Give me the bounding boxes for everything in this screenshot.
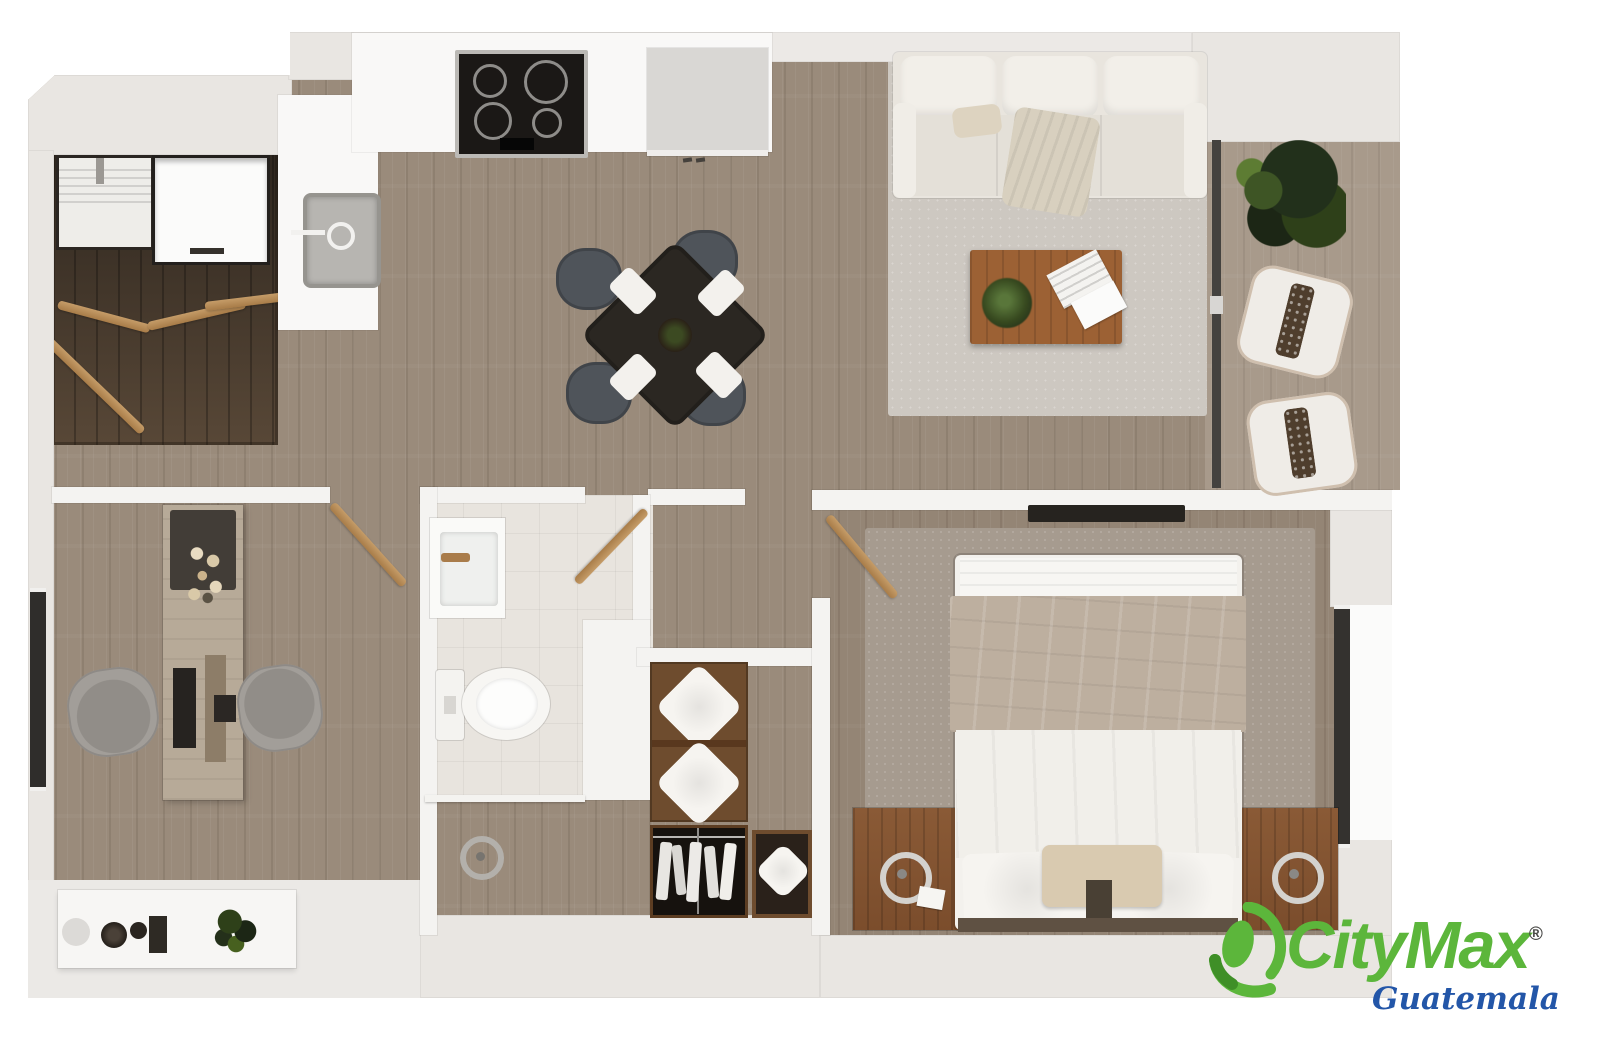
wall-left xyxy=(28,150,54,998)
wall-office-top xyxy=(52,487,330,503)
wall-bath-chase xyxy=(583,620,650,800)
floor-plan-image: CityMax® Guatemala xyxy=(0,0,1600,1038)
sliding-glass-door xyxy=(1212,140,1221,488)
desk-device xyxy=(214,695,236,722)
cooktop-burner xyxy=(524,60,568,104)
wall-kitchen-chunk xyxy=(288,32,354,80)
nightstand-notepad xyxy=(916,886,945,910)
sideboard-bowl xyxy=(130,922,147,939)
logo-region-text: Guatemala xyxy=(1372,984,1560,1015)
cooktop-controls xyxy=(500,138,534,150)
sofa-armrest xyxy=(1184,103,1207,198)
vanity-basin xyxy=(440,532,498,606)
bed-blanket xyxy=(950,596,1246,732)
table-centerpiece xyxy=(658,318,692,352)
sofa-armrest xyxy=(893,103,916,198)
sliding-door-handle xyxy=(1210,296,1223,314)
cooktop-burner xyxy=(473,64,507,98)
shower-glass xyxy=(425,795,585,802)
toilet-button xyxy=(444,696,456,714)
apartment-plan xyxy=(0,0,1600,1038)
sideboard-tray xyxy=(62,918,90,946)
citymax-swoosh-icon xyxy=(1208,902,1288,1007)
coffee-table-plant xyxy=(982,278,1032,328)
desk-flowers xyxy=(178,535,232,609)
logo-registered-mark: ® xyxy=(1529,924,1543,945)
washer-handle xyxy=(96,158,104,184)
wall-top-right-block xyxy=(1192,32,1400,142)
sink-faucet-arm xyxy=(291,230,325,235)
sideboard-plant xyxy=(205,896,267,960)
wall-right-sliver xyxy=(1350,605,1392,840)
sideboard-box xyxy=(149,916,167,953)
wall-tv xyxy=(1028,505,1185,522)
balcony-plant xyxy=(1228,140,1346,252)
wall-bottom-center xyxy=(420,915,820,998)
kitchen-island xyxy=(647,48,768,156)
sofa-throw-blanket xyxy=(1001,106,1102,218)
cooktop-burner xyxy=(532,108,562,138)
logo-brand-text: CityMax® xyxy=(1286,912,1543,979)
wall-bedroom-left xyxy=(812,598,830,935)
sofa-back-cushion xyxy=(1002,56,1098,118)
lamp-center xyxy=(1289,869,1299,879)
dining-chair xyxy=(556,248,622,310)
refrigerator-handle xyxy=(190,248,224,254)
toilet-seat xyxy=(476,678,538,730)
sink-faucet xyxy=(327,222,355,250)
office-window xyxy=(30,588,46,791)
desk-monitor xyxy=(173,668,196,748)
wall-top-left-mass xyxy=(28,75,292,155)
vanity-faucet xyxy=(441,553,470,562)
washer xyxy=(56,155,154,250)
closet-rod xyxy=(653,836,745,838)
shower-drain-dot xyxy=(476,852,485,861)
sofa-lumbar-pillow xyxy=(951,103,1002,139)
logo-brand-word: CityMax xyxy=(1286,908,1529,983)
wall-bath-top-right xyxy=(648,489,745,505)
lamp-center xyxy=(897,869,907,879)
wall-bath-top-left xyxy=(420,487,585,503)
bed-duvet xyxy=(956,730,1241,858)
bed-headboard xyxy=(958,918,1238,932)
citymax-logo: CityMax® Guatemala xyxy=(1208,898,1600,1028)
cooktop-burner xyxy=(474,102,512,140)
bed-sheet-fold xyxy=(960,558,1237,598)
nightstand-lamp xyxy=(1272,852,1324,904)
sideboard-bowl xyxy=(101,922,127,948)
